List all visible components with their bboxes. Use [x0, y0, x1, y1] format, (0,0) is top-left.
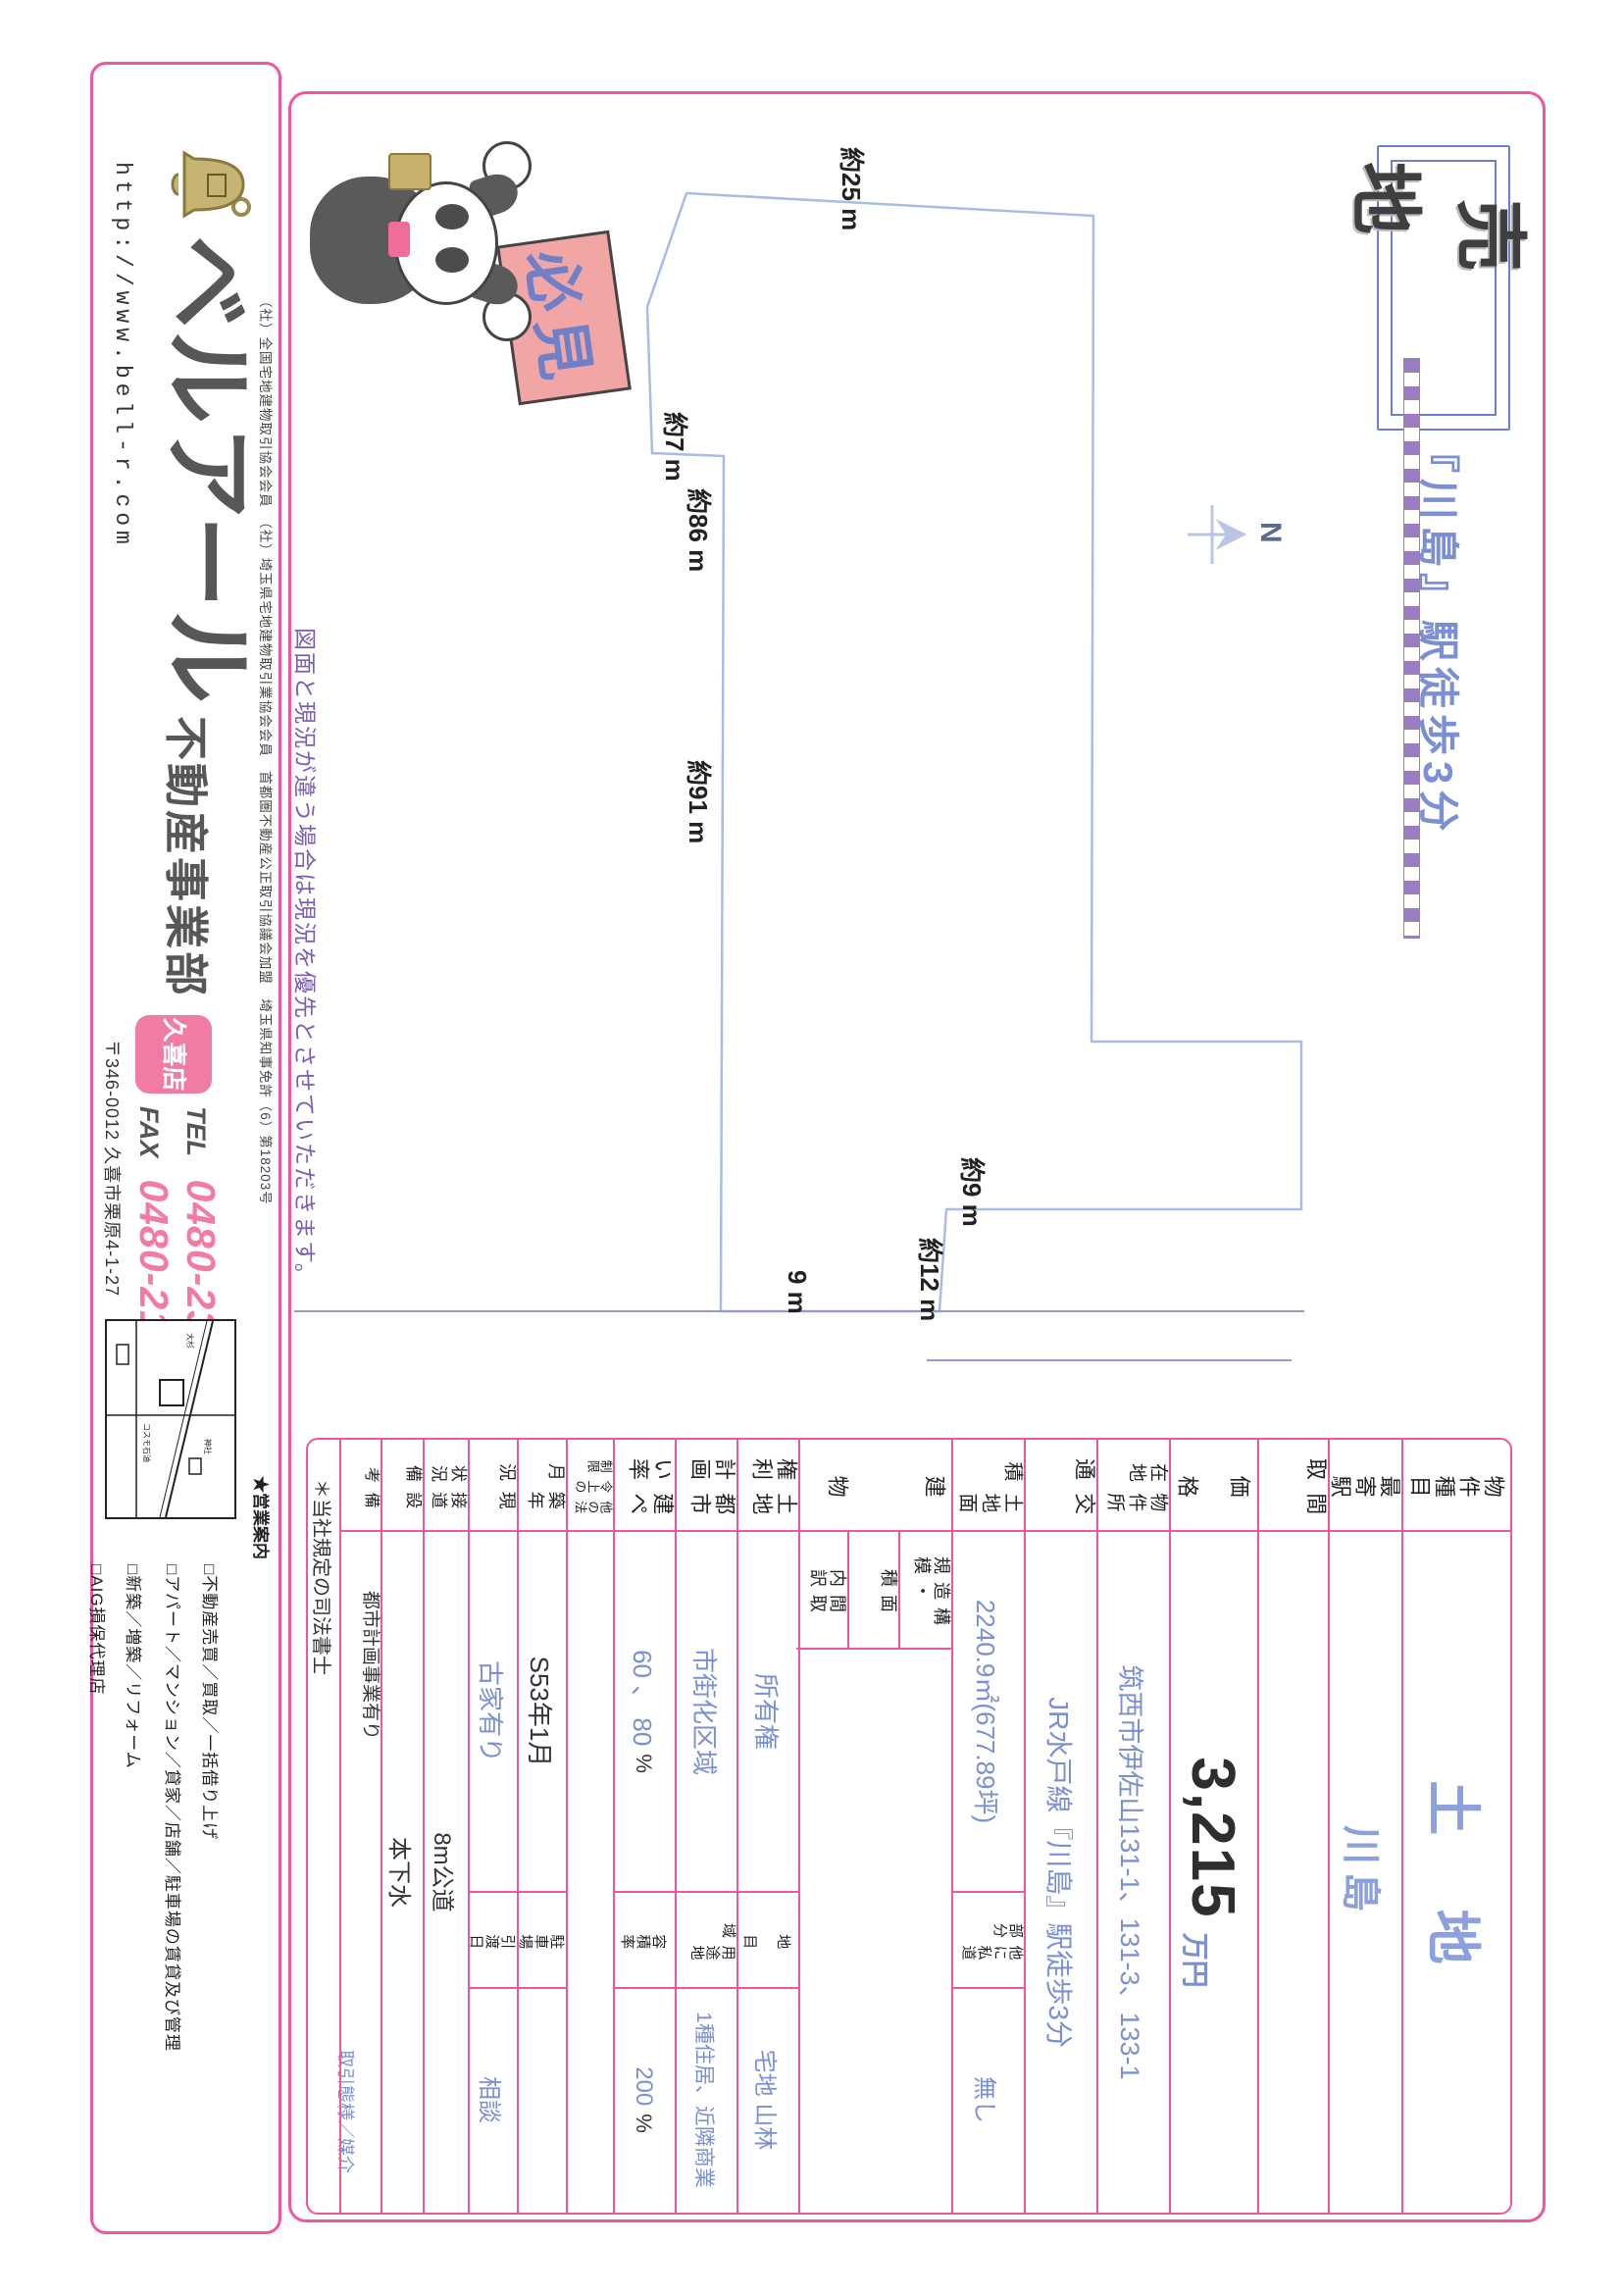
row-header: 交 通: [1024, 1440, 1096, 1532]
company-logo-text: ベルアール: [160, 235, 253, 705]
map-label-shrine: 神社: [202, 1439, 213, 1454]
remarks-line1: 都市計画事業有り: [360, 1591, 386, 1740]
row-header: 最寄駅: [1328, 1440, 1401, 1532]
row-header: 他の法令上の制限: [566, 1440, 613, 1532]
table-row: 備 考 都市計画事業有り 取引態様／媒介: [339, 1440, 382, 2213]
row-header: 土地権利: [736, 1440, 798, 1532]
row-subheader: 間取内訳: [796, 1532, 849, 1650]
row-value: JR水戸線『川島』駅徒歩3分: [1024, 1532, 1096, 2213]
row-value: 市街化区域: [675, 1532, 736, 1891]
company-address: 〒346-0012 久喜市栗原4-1-27: [100, 1040, 126, 1297]
dim-label-91m: 約91 m: [682, 760, 718, 843]
coverage-value: 60 、 80: [626, 1650, 662, 1746]
dim-label-12m: 約12 m: [913, 1238, 949, 1321]
disclaimer-text: 図面と現況が違う場合は現況を優先とさせていただきます。: [290, 628, 324, 1510]
row-header: 物件種目: [1403, 1440, 1510, 1532]
property-table: 物件種目 土 地 最寄駅 川島 間 取 価 格 3,215 万円 物件所在地 筑…: [306, 1438, 1512, 2215]
row-header: 設 備: [381, 1440, 423, 1532]
row-value2: 無し: [951, 1987, 1024, 2213]
row-value: 所有権: [736, 1532, 798, 1891]
dim-label-7m: 約7 m: [658, 412, 694, 482]
access-map: 神社 コスモ石油 大杉: [105, 1319, 236, 1519]
far-unit: %: [632, 2114, 657, 2133]
row-value: 本下水: [381, 1532, 423, 2213]
mascot-bowtie: [388, 222, 410, 257]
branch-badge: 久喜店: [135, 1015, 212, 1094]
row-header: 築年月: [517, 1440, 566, 1532]
north-letter: N: [1253, 522, 1287, 543]
row-value: 土 地: [1403, 1532, 1510, 2213]
row-header: 建ぺい率: [613, 1440, 675, 1532]
row-value: 8m公道: [423, 1532, 468, 2213]
table-row: 他の法令上の制限: [566, 1440, 615, 2213]
flyer-page: 売地 『川島』駅徒歩3分 約25 m 約7 m 約86 m 約91 m 約9 m…: [0, 0, 1624, 2294]
dim-label-road-9m: 9 m: [782, 1270, 812, 1314]
row-header: 建 物: [798, 1440, 951, 1532]
fax-label: FAX: [133, 1106, 164, 1175]
service-item: □アパート／マンション／貸家／店舗／駐車場の賃貸及び管理: [162, 1564, 186, 2052]
table-row: 物件種目 土 地: [1403, 1440, 1510, 2213]
dim-label-9m: 約9 m: [955, 1157, 991, 1227]
services-title: ★営業案内: [250, 1476, 275, 1559]
table-row: 土地面積 2240.9㎡(677.89坪) 他に私道部分 無し: [951, 1440, 1026, 2213]
row-subheader: 引渡日: [468, 1891, 517, 1989]
table-row-group-building: 建 物 構造・規模 面 積 間取内訳: [798, 1440, 953, 2213]
dim-label-86m: 約86 m: [682, 488, 718, 572]
map-label-gasstation: コスモ石油: [141, 1423, 152, 1462]
row-value: 古家有り: [468, 1532, 517, 1891]
table-row: 現 況 古家有り 引渡日 相談: [468, 1440, 519, 2213]
row-header: 現 況: [468, 1440, 517, 1532]
row-value: S53年1月: [517, 1532, 566, 1891]
row-value: [566, 1532, 613, 2213]
row-value: 筑西市伊佐山131-1、131-3、133-1: [1096, 1532, 1169, 2213]
table-row: 土地権利 所有権 地 目 宅地 山林: [736, 1440, 800, 2213]
row-value: 都市計画事業有り 取引態様／媒介: [339, 1532, 381, 2213]
company-url: http://www.bell-r.com: [110, 162, 135, 549]
row-value: [1257, 1532, 1328, 2213]
row-subheader: 地 目: [736, 1891, 798, 1989]
row-value: 60 、 80 %: [613, 1532, 675, 1891]
table-row: 間 取: [1257, 1440, 1330, 2213]
bell-icon: [171, 145, 255, 224]
row-header: 物件所在地: [1096, 1440, 1169, 1532]
row-value: 2240.9㎡(677.89坪): [951, 1532, 1024, 1891]
mascot-cat: [300, 147, 526, 333]
row-header: 価 格: [1169, 1440, 1257, 1532]
row-header: 都市計画: [675, 1440, 736, 1532]
table-row: 接道状況 8m公道: [423, 1440, 470, 2213]
service-item: □新築／増築／リフォーム: [123, 1564, 147, 1769]
tel-label: TEL: [180, 1106, 211, 1175]
coverage-unit: %: [632, 1754, 657, 1773]
row-header: 土地面積: [951, 1440, 1024, 1532]
row-value: ＊当社規定の司法書士: [308, 1440, 339, 2213]
row-value2: 相談: [468, 1987, 517, 2213]
row-value: 3,215 万円: [1169, 1532, 1257, 2213]
membership-line: （社）全国宅地建物取引協会会員 （社）埼玉県宅地建物取引業協会会員 首都圏不動産…: [257, 294, 277, 1205]
row-value2: 宅地 山林: [736, 1987, 798, 2213]
access-map-lines: [107, 1321, 234, 1517]
table-row: 物件所在地 筑西市伊佐山131-1、131-3、133-1: [1096, 1440, 1171, 2213]
dim-label-25m: 約25 m: [835, 147, 871, 230]
table-row: ＊当社規定の司法書士: [308, 1440, 341, 2213]
row-value2: [517, 1987, 566, 2213]
mascot-eye-left: [435, 204, 469, 229]
service-item: □AIG損保代理店: [86, 1564, 111, 1696]
row-header: 接道状況: [423, 1440, 468, 1532]
mascot-mug: [388, 153, 431, 190]
table-row: 都市計画 市街化区域 用途地域 1種住居、近隣商業: [675, 1440, 738, 2213]
table-row: 築年月 S53年1月 駐車場: [517, 1440, 568, 2213]
price-number: 3,215: [1179, 1757, 1248, 1918]
table-row: 交 通 JR水戸線『川島』駅徒歩3分: [1024, 1440, 1098, 2213]
row-subheader: 構造・規模: [900, 1532, 951, 1650]
rotated-stage: 売地 『川島』駅徒歩3分 約25 m 約7 m 約86 m 約91 m 約9 m…: [0, 0, 1624, 2294]
plot-outline: [647, 193, 1301, 1311]
far-value: 200: [631, 2066, 658, 2106]
map-label-osugi: 大杉: [184, 1333, 195, 1349]
row-subheader: 用途地域: [675, 1891, 736, 1989]
mascot-eye-right: [435, 247, 469, 273]
service-item: □不動産売買／買取／一括借り上げ: [199, 1564, 224, 1840]
row-subheader: 容積率: [613, 1891, 675, 1989]
row-subheader: 駐車場: [517, 1891, 566, 1989]
row-header: 備 考: [339, 1440, 381, 1532]
row-value2: 1種住居、近隣商業: [675, 1987, 736, 2213]
row-subheader: 他に私道部分: [951, 1891, 1024, 1989]
price-unit: 万円: [1169, 1933, 1216, 1988]
table-row: 建ぺい率 60 、 80 % 容積率 200 %: [613, 1440, 677, 2213]
row-value2: 200 %: [613, 1987, 675, 2213]
table-row: 最寄駅 川島: [1328, 1440, 1403, 2213]
row-subheader: 面 積: [847, 1532, 900, 1650]
row-header: 間 取: [1257, 1440, 1328, 1532]
table-row: 設 備 本下水: [381, 1440, 425, 2213]
north-arrow-icon: [1188, 505, 1243, 564]
table-row: 価 格 3,215 万円: [1169, 1440, 1259, 2213]
company-dept: 不動産事業部: [158, 716, 222, 998]
row-value: 川島: [1328, 1532, 1401, 2213]
